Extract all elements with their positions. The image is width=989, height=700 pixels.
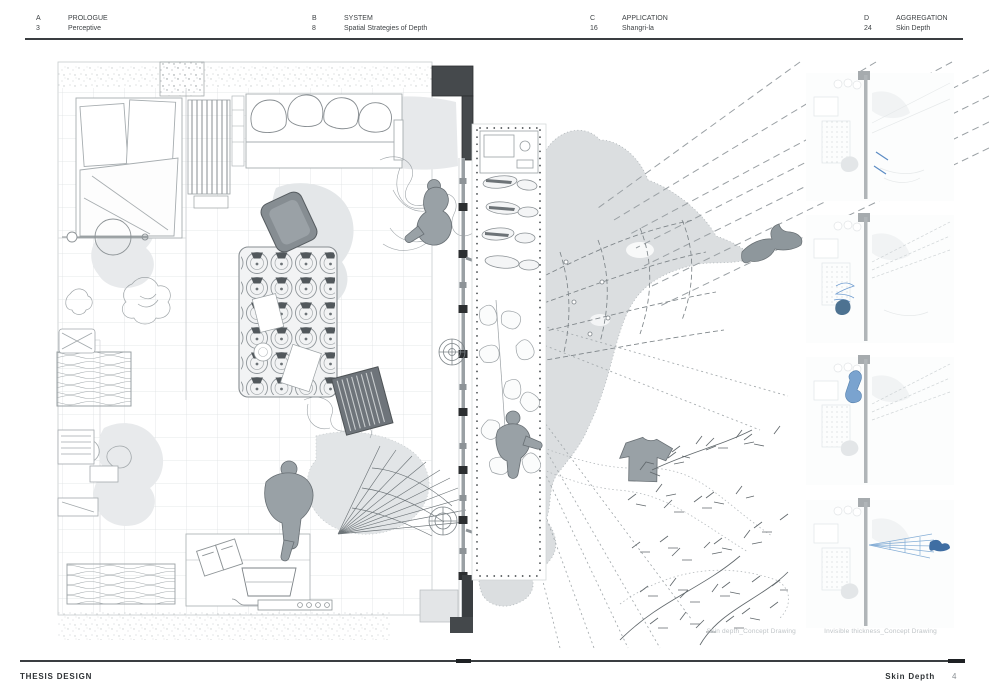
wood-table-upper [57, 352, 131, 406]
wood-table-lower [67, 564, 175, 604]
section-letter: A [36, 14, 68, 24]
thesis-page: A 3 PROLOGUE Perceptive B 8 SYSTEM Spati… [0, 0, 989, 700]
section-number: 8 [312, 24, 344, 34]
section-number: 24 [864, 24, 896, 34]
section-subtitle: Spatial Strategies of Depth [344, 24, 564, 34]
thumbnail-wall [864, 359, 868, 483]
thumbnail-wall [864, 217, 868, 341]
section-letter: D [864, 14, 896, 24]
section-title: APPLICATION [622, 14, 842, 24]
tshirt-silhouette [617, 435, 674, 487]
section-subtitle: Skin Depth [896, 24, 989, 34]
section-subtitle: Perceptive [68, 24, 288, 34]
section-title: AGGREGATION [896, 14, 989, 24]
concept-thumbnail-1 [806, 71, 954, 201]
header-section-a: A 3 PROLOGUE Perceptive [36, 14, 288, 33]
round-ornaments [429, 339, 465, 535]
concept-thumbnail-3 [806, 355, 954, 485]
thumbnail-wall [864, 75, 868, 199]
footer-rule-tick-left [456, 659, 471, 663]
section-number: 3 [36, 24, 68, 34]
footer-project-title: THESIS DESIGN [20, 672, 92, 681]
header-rule [25, 38, 963, 40]
section-subtitle: Shangri-la [622, 24, 842, 34]
corridor-counter [480, 131, 538, 173]
footer-rule-tick-right [948, 659, 965, 663]
footer-rule [20, 660, 965, 662]
section-number: 16 [590, 24, 622, 34]
section-letter: C [590, 14, 622, 24]
bird-silhouette [742, 224, 802, 263]
header-section-c: C 16 APPLICATION Shangri-la [590, 14, 842, 33]
section-letter: B [312, 14, 344, 24]
caption-invisible-thickness: Invisible thickness_Concept Drawing [742, 628, 937, 635]
footer-page-number: 4 [952, 672, 956, 681]
sofa [246, 94, 403, 168]
bed [76, 98, 182, 238]
footer-chapter-title: Skin Depth [840, 672, 935, 681]
corridor [472, 124, 546, 580]
concept-thumbnail-2 [806, 213, 954, 343]
concept-thumbnail-4 [806, 498, 954, 628]
main-drawing [0, 0, 989, 700]
section-title: PROLOGUE [68, 14, 288, 24]
header-section-d: D 24 AGGREGATION Skin Depth [864, 14, 989, 33]
header-section-b: B 8 SYSTEM Spatial Strategies of Depth [312, 14, 564, 33]
section-title: SYSTEM [344, 14, 564, 24]
patterned-carpet [239, 247, 337, 397]
thumbnail-wall [864, 502, 868, 626]
